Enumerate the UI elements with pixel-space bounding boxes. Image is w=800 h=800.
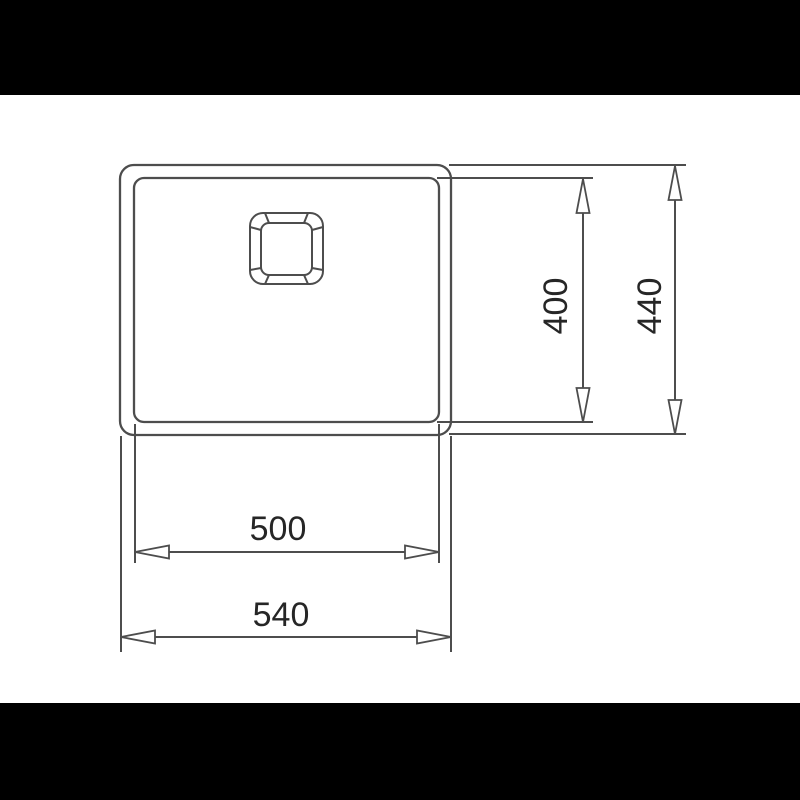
arrowhead-right-540 bbox=[417, 631, 451, 644]
dimension-inner-height: 400 bbox=[537, 179, 590, 422]
letterbox-bottom bbox=[0, 703, 800, 800]
arrowhead-right-500 bbox=[405, 546, 439, 559]
letterbox-top bbox=[0, 0, 800, 95]
dimension-inner-width: 500 bbox=[135, 510, 439, 559]
dimension-outer-height: 440 bbox=[631, 166, 682, 434]
drain-outline bbox=[250, 213, 323, 284]
arrowhead-down-440 bbox=[669, 400, 682, 434]
arrowhead-up-440 bbox=[669, 166, 682, 200]
dimension-label-500: 500 bbox=[250, 510, 307, 548]
screenshot-canvas: 400 440 500 540 bbox=[0, 0, 800, 800]
sink-inner-rim bbox=[134, 178, 439, 422]
dimension-outer-width: 540 bbox=[121, 596, 451, 644]
arrowhead-down-400 bbox=[577, 388, 590, 422]
sink-outer-rim bbox=[120, 165, 451, 435]
arrowhead-up-400 bbox=[577, 179, 590, 213]
dimension-label-540: 540 bbox=[253, 596, 310, 634]
extension-lines bbox=[121, 165, 686, 652]
dimension-drawing: 400 440 500 540 bbox=[0, 0, 800, 800]
arrowhead-left-500 bbox=[135, 546, 169, 559]
dimension-label-440: 440 bbox=[631, 278, 669, 335]
arrowhead-left-540 bbox=[121, 631, 155, 644]
sink-outline bbox=[120, 165, 451, 435]
drain-inner-square bbox=[261, 223, 312, 275]
dimension-label-400: 400 bbox=[537, 278, 575, 335]
